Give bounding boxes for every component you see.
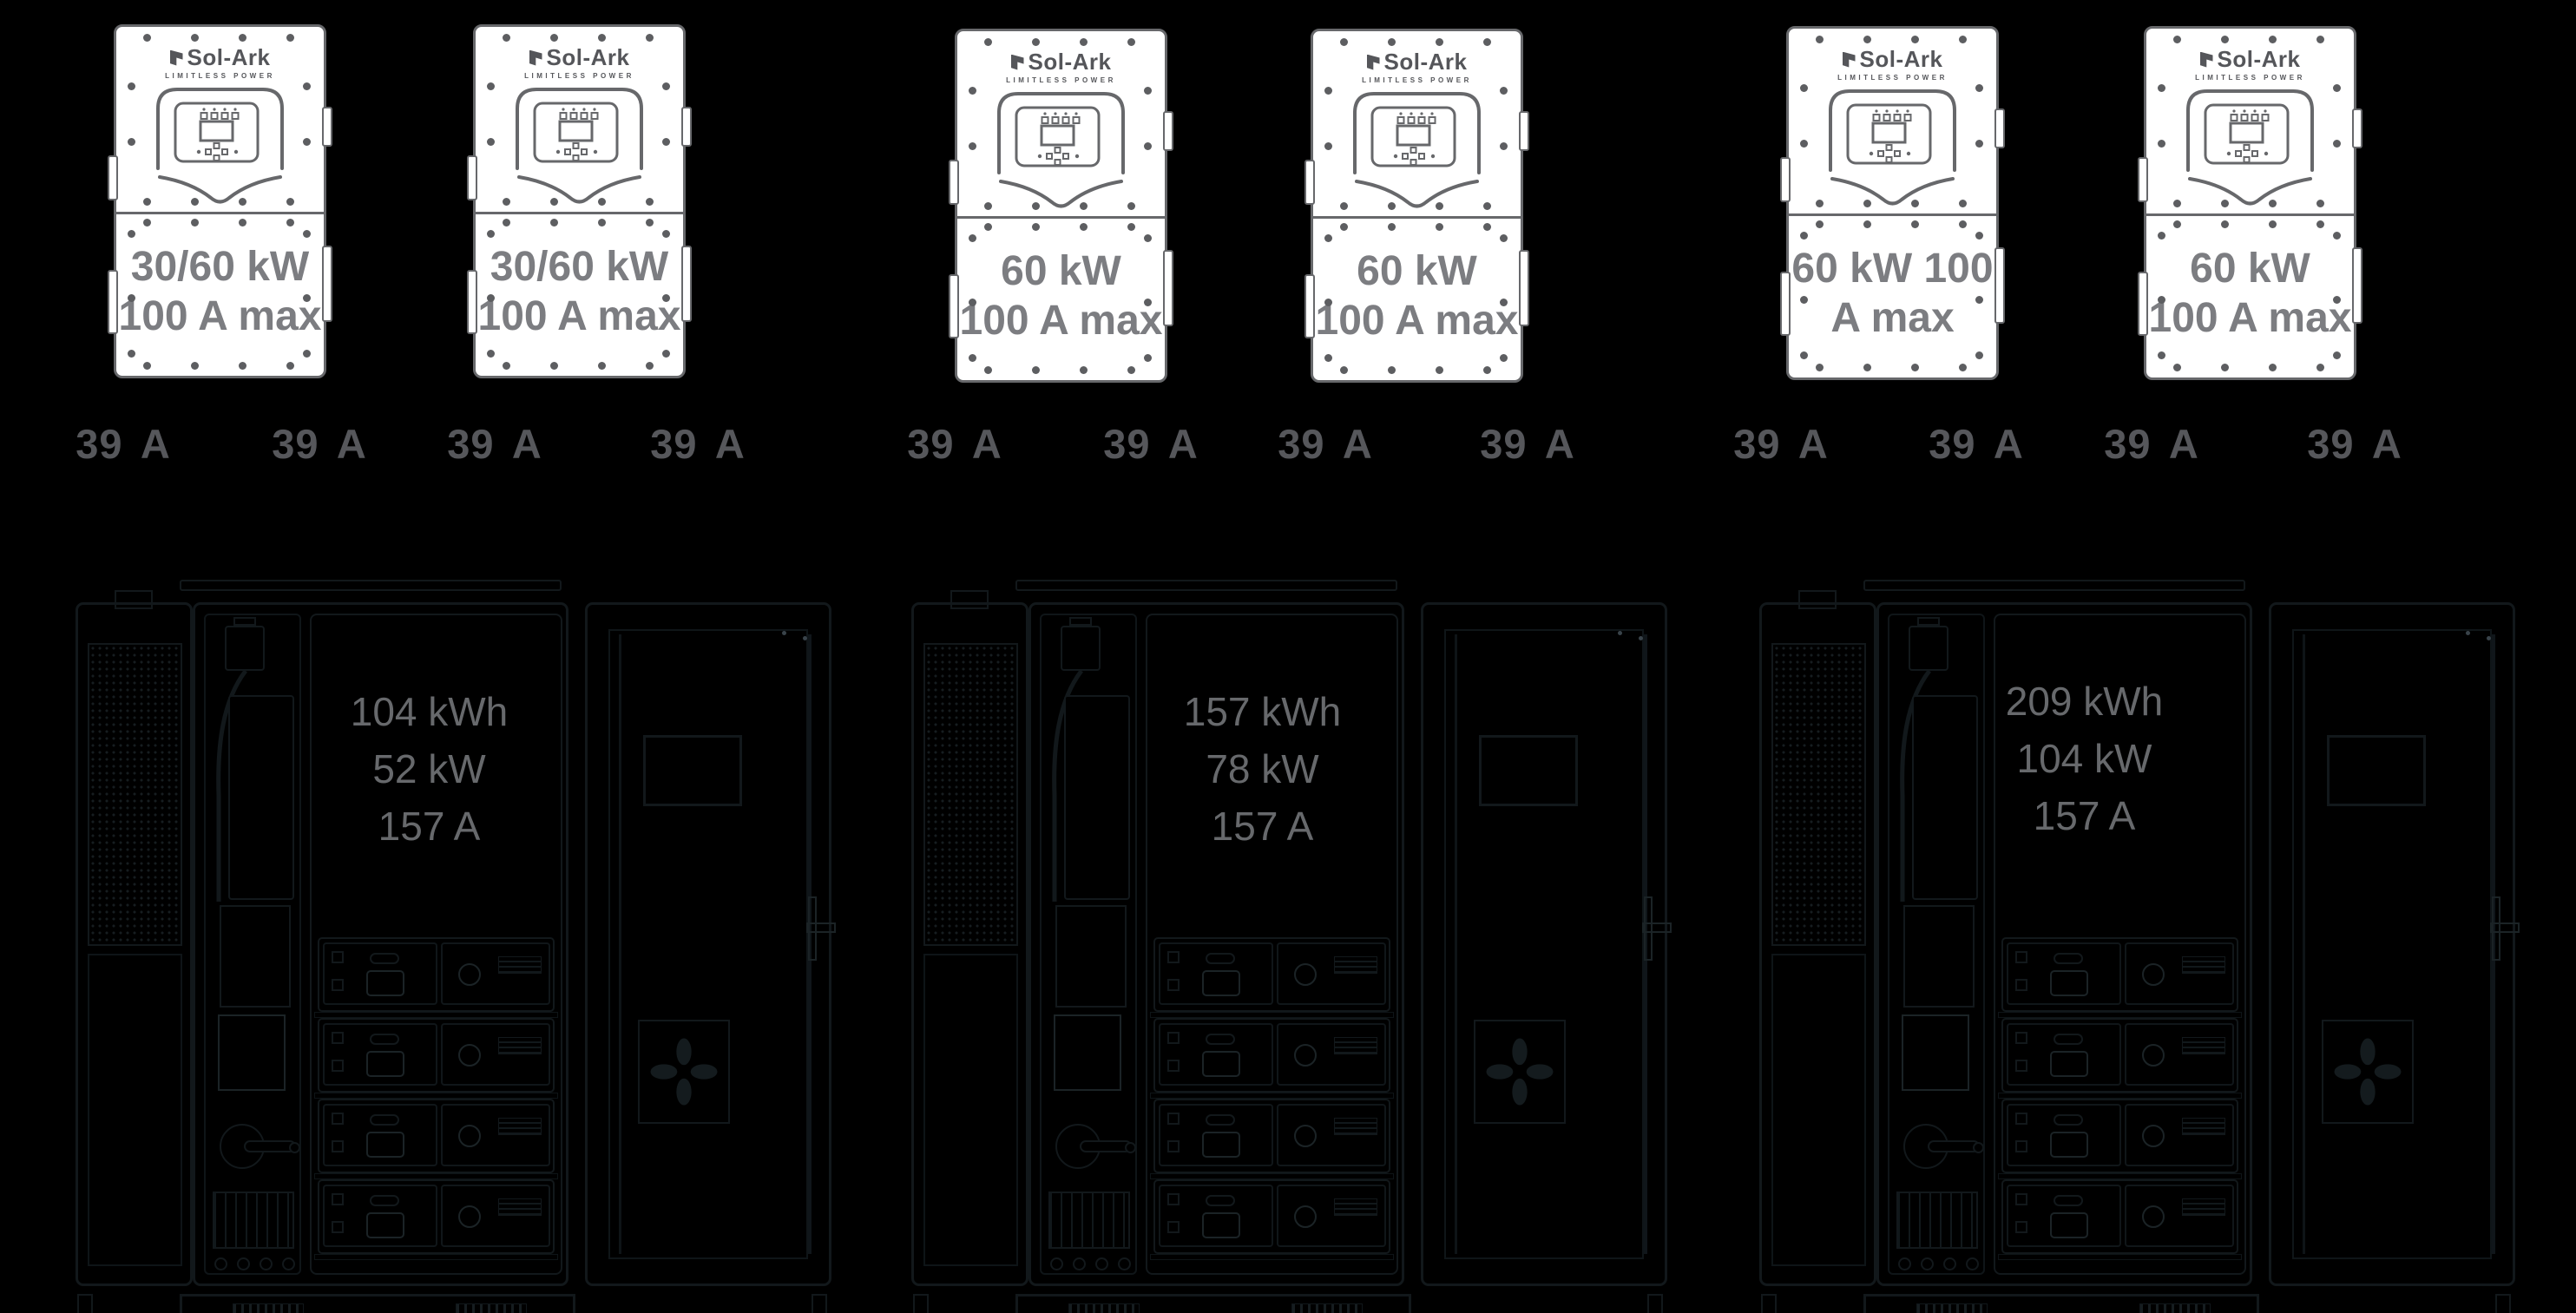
module-port	[332, 1113, 344, 1125]
screw-dot	[662, 82, 670, 90]
module-port	[332, 979, 344, 991]
screw-dot	[2316, 364, 2324, 371]
screw-dot	[646, 198, 654, 206]
module-handle	[1206, 1114, 1235, 1126]
right-latch	[322, 107, 332, 147]
battery-module	[1153, 937, 1390, 1012]
screw-dot	[1324, 234, 1332, 242]
module-connector	[366, 1212, 404, 1238]
module-label-plate	[2182, 956, 2225, 974]
screw-dot	[1127, 223, 1135, 231]
screw-dot	[984, 366, 992, 374]
inverter-display-graphic	[476, 84, 683, 214]
module-connector-panel	[2007, 1104, 2121, 1166]
solark-flag-icon	[170, 50, 183, 66]
right-latch	[1163, 111, 1173, 151]
module-face-panel	[441, 942, 550, 1005]
screw-dot	[239, 198, 246, 206]
screw-dot	[2333, 232, 2341, 240]
module-connector-panel	[1159, 942, 1273, 1005]
module-connector	[2050, 1051, 2088, 1077]
module-port	[1167, 979, 1180, 991]
screw-dot	[2269, 200, 2277, 207]
door-cabinet	[1421, 602, 1667, 1286]
solark-logo-text: Sol-Ark	[187, 44, 271, 71]
module-face-panel	[1277, 1023, 1386, 1086]
right-latch	[681, 107, 692, 147]
screw-dot	[1144, 142, 1152, 150]
terminal	[1073, 1257, 1086, 1270]
module-label-plate	[498, 1118, 542, 1135]
bank-plinth	[1863, 1294, 2259, 1313]
screw-dot	[2173, 220, 2181, 228]
inverter-rating: 60 kW 100 A max	[1313, 246, 1521, 345]
vent-cabinet	[1759, 602, 1876, 1286]
screw-dot	[1911, 364, 1919, 371]
inverter-rating-line1: 60 kW	[1313, 246, 1521, 296]
inverter-rating: 30/60 kW 100 A max	[116, 242, 324, 341]
screw-dot	[1127, 366, 1135, 374]
module-port	[332, 1221, 344, 1233]
conduit-cap	[1917, 617, 1940, 626]
inverter-rating-line1: 60 kW	[957, 246, 1165, 296]
screw-dot	[1080, 223, 1088, 231]
inverter-output-current-label-9: 39 A	[1733, 420, 1829, 468]
terminal	[1095, 1257, 1108, 1270]
fan-grille-icon	[1474, 1020, 1566, 1124]
screw-dot	[598, 362, 606, 370]
module-label-plate	[1334, 1037, 1377, 1054]
screw-dot	[1911, 220, 1919, 228]
solark-logo-text: Sol-Ark	[547, 44, 630, 71]
inverter-display-graphic	[116, 84, 324, 214]
screw-dot	[2316, 36, 2324, 43]
terminal	[1921, 1257, 1934, 1270]
screw-dot	[286, 219, 294, 226]
module-label-plate	[498, 956, 542, 974]
screw-dot	[1436, 223, 1443, 231]
screw-dot	[2158, 232, 2165, 240]
battery-module	[318, 1018, 555, 1093]
solark-flag-icon	[2200, 52, 2213, 68]
screw-dot	[1144, 299, 1152, 306]
module-handle	[370, 953, 399, 964]
screw-dot	[1800, 296, 1808, 304]
screw-dot	[1863, 364, 1871, 371]
module-face-panel	[2125, 1023, 2234, 1086]
module-handle	[1206, 1195, 1235, 1206]
screw-dot	[1975, 351, 1983, 359]
battery-bank-2: 157 kWh 78 kW 157 A	[911, 580, 1667, 1313]
screw-dot	[646, 362, 654, 370]
screw-dot	[969, 87, 976, 95]
battery-bank-1: 104 kWh 52 kW 157 A	[76, 580, 831, 1313]
right-latch	[1994, 247, 2005, 324]
module-connector	[366, 1132, 404, 1158]
screw-dot	[1816, 36, 1824, 43]
module-handle	[2054, 953, 2083, 964]
module-connector-panel	[2007, 942, 2121, 1005]
fan-grille-icon	[638, 1020, 730, 1124]
right-latch	[2352, 247, 2362, 324]
terminal	[1943, 1257, 1956, 1270]
inverter-output-current-label-10: 39 A	[1929, 420, 2024, 468]
battery-module	[2001, 937, 2238, 1012]
battery-module-bay: 104 kWh 52 kW 157 A	[310, 614, 562, 1275]
terminal	[1050, 1257, 1063, 1270]
right-latch	[322, 246, 332, 322]
bank-top-cap	[180, 580, 562, 591]
battery-specs: 209 kWh 104 kW 157 A	[2006, 673, 2164, 844]
screw-dot	[1959, 364, 1967, 371]
bank-plinth	[1015, 1294, 1411, 1313]
solark-logo-text: Sol-Ark	[1860, 46, 1943, 73]
terminal	[1118, 1257, 1131, 1270]
screw-dot	[1975, 140, 1983, 148]
screw-dot	[969, 299, 976, 306]
module-face-panel	[2125, 1185, 2234, 1247]
terminal	[237, 1257, 250, 1270]
right-latch	[1163, 250, 1173, 326]
screw-dot	[984, 202, 992, 210]
control-panel-upper	[228, 695, 294, 900]
latch-highlight	[2466, 631, 2470, 635]
control-column	[1888, 614, 1985, 1275]
left-hinge	[949, 274, 959, 338]
module-connector-panel	[323, 1185, 437, 1247]
battery-module	[1153, 1018, 1390, 1093]
module-logo-badge	[1294, 1125, 1317, 1147]
module-port	[2015, 979, 2027, 991]
battery-module	[318, 1179, 555, 1254]
screw-dot	[598, 219, 606, 226]
control-panel-lower	[1903, 905, 1975, 1008]
screw-dot	[1080, 202, 1088, 210]
inverter-rating-line2: 100 A max	[2146, 293, 2354, 343]
inverter-output-current-label-3: 39 A	[447, 420, 542, 468]
bank-top-cap	[1015, 580, 1397, 591]
battery-capacity: 209 kWh	[2006, 673, 2164, 730]
control-column	[204, 614, 301, 1275]
screw-dot	[1144, 234, 1152, 242]
module-connector-panel	[323, 1023, 437, 1086]
solark-logo-text: Sol-Ark	[1384, 49, 1468, 75]
battery-cabinet-open: 209 kWh 104 kW 157 A	[1876, 602, 2252, 1286]
module-face-panel	[1277, 1104, 1386, 1166]
inverter-rating-line1: 30/60 kW	[476, 242, 683, 292]
screw-dot	[2269, 36, 2277, 43]
module-handle	[1206, 1034, 1235, 1045]
battery-current: 157 A	[351, 798, 509, 855]
screw-dot	[239, 219, 246, 226]
screw-dot	[1863, 200, 1871, 207]
screw-dot	[239, 362, 246, 370]
screw-dot	[503, 198, 510, 206]
module-face-panel	[2125, 942, 2234, 1005]
screw-dot	[503, 219, 510, 226]
module-logo-badge	[1294, 1205, 1317, 1228]
module-connector-panel	[1159, 1185, 1273, 1247]
module-connector	[2050, 1132, 2088, 1158]
module-handle	[370, 1195, 399, 1206]
screw-dot	[1911, 200, 1919, 207]
terminal	[1966, 1257, 1979, 1270]
screw-dot	[1500, 234, 1508, 242]
door-hinge-line	[1455, 634, 1457, 1254]
door-panel	[2292, 629, 2492, 1259]
door-louver-vent	[643, 735, 742, 806]
module-logo-badge	[2142, 1125, 2165, 1147]
module-shelf	[1998, 1012, 2242, 1018]
door-hinge-line	[619, 634, 621, 1254]
solark-logo-tagline: LIMITLESS POWER	[476, 72, 683, 80]
module-shelf	[314, 1254, 558, 1260]
conduit-junction-box	[1909, 626, 1948, 671]
module-logo-badge	[2142, 1205, 2165, 1228]
module-label-plate	[2182, 1037, 2225, 1054]
screw-dot	[1816, 200, 1824, 207]
inverter-panel-seam	[116, 212, 324, 214]
latch-highlight	[1618, 631, 1622, 635]
right-latch	[1519, 111, 1529, 151]
inverter-6: Sol-Ark LIMITLESS POWER	[2144, 26, 2356, 380]
battery-module	[2001, 1099, 2238, 1173]
inverter-output-current-label-8: 39 A	[1480, 420, 1575, 468]
vent-cabinet-bracket	[1798, 590, 1837, 609]
module-connector-panel	[323, 1104, 437, 1166]
inverter-display-graphic	[1313, 89, 1521, 219]
module-handle	[2054, 1114, 2083, 1126]
breaker-box	[1054, 1014, 1121, 1091]
inverter-4: Sol-Ark LIMITLESS POWER	[1311, 29, 1523, 383]
module-logo-badge	[458, 1044, 481, 1067]
terminal	[214, 1257, 227, 1270]
latch-highlight	[2487, 636, 2491, 640]
battery-module	[1153, 1099, 1390, 1173]
breaker-row	[1048, 1192, 1130, 1249]
screw-dot	[286, 362, 294, 370]
screw-dot	[303, 82, 311, 90]
module-label-plate	[1334, 1198, 1377, 1216]
screw-dot	[239, 34, 246, 42]
module-connector-panel	[2007, 1023, 2121, 1086]
screw-dot	[1032, 366, 1040, 374]
door-handle	[806, 922, 836, 933]
inverter-rating: 60 kW 100 A max	[957, 246, 1165, 345]
module-logo-badge	[2142, 963, 2165, 986]
module-shelf	[1150, 1093, 1394, 1099]
door-handle	[2490, 922, 2520, 933]
screw-dot	[1959, 220, 1967, 228]
solark-flag-icon	[1011, 55, 1024, 70]
inverter-output-current-label-6: 39 A	[1103, 420, 1199, 468]
left-hinge	[467, 155, 477, 200]
screw-dot	[2158, 296, 2165, 304]
screw-dot	[143, 362, 151, 370]
inverter-panel-seam	[957, 216, 1165, 219]
screw-dot	[487, 350, 495, 358]
screw-dot	[487, 294, 495, 302]
screw-dot	[1388, 202, 1396, 210]
screw-dot	[191, 219, 199, 226]
inverter-2: Sol-Ark LIMITLESS POWER	[473, 24, 686, 378]
screw-dot	[128, 138, 135, 146]
screw-dot	[1144, 354, 1152, 362]
inverter-output-current-label-12: 39 A	[2307, 420, 2402, 468]
left-hinge	[2138, 157, 2148, 202]
door-cabinet	[2269, 602, 2515, 1286]
disconnect-lever	[1080, 1140, 1132, 1152]
solark-logo: Sol-Ark LIMITLESS POWER	[1789, 46, 1996, 82]
screw-dot	[2269, 220, 2277, 228]
screw-dot	[969, 354, 976, 362]
screw-dot	[1816, 364, 1824, 371]
right-latch	[681, 246, 692, 322]
solark-flag-icon	[1367, 55, 1380, 70]
left-hinge	[1304, 160, 1315, 205]
inverter-panel-seam	[476, 212, 683, 214]
screw-dot	[487, 82, 495, 90]
screw-dot	[1324, 299, 1332, 306]
module-port	[2015, 1140, 2027, 1152]
module-shelf	[314, 1173, 558, 1179]
screw-dot	[1324, 87, 1332, 95]
battery-specs: 104 kWh 52 kW 157 A	[351, 683, 509, 855]
screw-dot	[550, 219, 558, 226]
screw-dot	[1975, 232, 1983, 240]
module-label-plate	[498, 1037, 542, 1054]
module-connector-panel	[2007, 1185, 2121, 1247]
screw-dot	[2173, 200, 2181, 207]
screw-dot	[969, 234, 976, 242]
vent-cabinet-bracket	[950, 590, 989, 609]
cabinet-foot	[913, 1294, 929, 1313]
plinth-vent	[1916, 1303, 1988, 1313]
screw-dot	[191, 34, 199, 42]
solark-logo-tagline: LIMITLESS POWER	[2146, 74, 2354, 82]
conduit-junction-box	[225, 626, 265, 671]
module-connector	[1202, 1051, 1240, 1077]
module-shelf	[1998, 1254, 2242, 1260]
plinth-vent	[233, 1303, 304, 1313]
screw-dot	[1863, 220, 1871, 228]
inverter-rating-line2: 100 A max	[116, 292, 324, 341]
inverter-output-current-label-1: 39 A	[76, 420, 171, 468]
screw-dot	[128, 230, 135, 238]
screw-dot	[128, 350, 135, 358]
right-latch	[1994, 108, 2005, 148]
module-logo-badge	[1294, 963, 1317, 986]
vent-perforated-panel	[1771, 643, 1866, 946]
plinth-vent	[1291, 1303, 1363, 1313]
module-port	[1167, 1193, 1180, 1205]
module-shelf	[1998, 1093, 2242, 1099]
inverter-rating: 60 kW 100 A max	[2146, 244, 2354, 343]
plinth-vent	[2139, 1303, 2211, 1313]
screw-dot	[646, 34, 654, 42]
door-louver-vent	[1479, 735, 1578, 806]
module-port	[1167, 1221, 1180, 1233]
bank-top-cap	[1863, 580, 2245, 591]
screw-dot	[1483, 38, 1491, 46]
module-shelf	[1998, 1173, 2242, 1179]
inverter-display-graphic	[1789, 86, 1996, 216]
solark-flag-icon	[1843, 52, 1856, 68]
module-connector	[366, 1051, 404, 1077]
screw-dot	[1388, 38, 1396, 46]
latch-highlight	[782, 631, 786, 635]
control-panel-upper	[1912, 695, 1978, 900]
module-face-panel	[1277, 1185, 1386, 1247]
inverter-rating-line2: A max	[1789, 293, 1996, 343]
module-handle	[1206, 953, 1235, 964]
vent-lower-panel	[88, 954, 182, 1266]
module-connector	[366, 970, 404, 996]
inverter-output-current-label-5: 39 A	[907, 420, 1002, 468]
screw-dot	[2269, 364, 2277, 371]
module-handle	[370, 1114, 399, 1126]
inverter-3: Sol-Ark LIMITLESS POWER	[955, 29, 1167, 383]
module-port	[1167, 1032, 1180, 1044]
plinth-vent	[456, 1303, 527, 1313]
screw-dot	[1483, 202, 1491, 210]
solark-logo-tagline: LIMITLESS POWER	[1313, 76, 1521, 84]
breaker-box	[1902, 1014, 1969, 1091]
screw-dot	[1127, 38, 1135, 46]
screw-dot	[1127, 202, 1135, 210]
inverter-rating-line2: 100 A max	[957, 296, 1165, 345]
module-logo-badge	[2142, 1044, 2165, 1067]
disconnect-lever	[244, 1140, 296, 1152]
battery-bank-3: 209 kWh 104 kW 157 A	[1759, 580, 2515, 1313]
breaker-row	[1896, 1192, 1978, 1249]
screw-dot	[2158, 351, 2165, 359]
screw-dot	[2158, 140, 2165, 148]
control-panel-lower	[1055, 905, 1127, 1008]
solark-flag-icon	[529, 50, 542, 66]
left-hinge	[1780, 157, 1791, 202]
screw-dot	[1340, 223, 1348, 231]
inverter-display-graphic	[2146, 86, 2354, 216]
battery-cabinet-open: 104 kWh 52 kW 157 A	[193, 602, 568, 1286]
screw-dot	[1483, 366, 1491, 374]
screw-dot	[550, 198, 558, 206]
screw-dot	[1324, 142, 1332, 150]
screw-dot	[303, 350, 311, 358]
module-label-plate	[498, 1198, 542, 1216]
screw-dot	[143, 219, 151, 226]
fan-grille-icon	[2322, 1020, 2414, 1124]
module-port	[1167, 1140, 1180, 1152]
control-panel-lower	[220, 905, 291, 1008]
left-hinge	[108, 270, 118, 334]
screw-dot	[2333, 351, 2341, 359]
battery-module	[1153, 1179, 1390, 1254]
battery-cabinet-open: 157 kWh 78 kW 157 A	[1028, 602, 1404, 1286]
left-hinge	[1780, 272, 1791, 336]
latch-highlight	[803, 636, 807, 640]
module-label-plate	[2182, 1118, 2225, 1135]
left-hinge	[1304, 274, 1315, 338]
left-hinge	[467, 270, 477, 334]
vent-perforated-panel	[88, 643, 182, 946]
battery-capacity: 104 kWh	[351, 683, 509, 740]
inverter-5: Sol-Ark LIMITLESS POWER	[1786, 26, 1999, 380]
module-connector	[2050, 970, 2088, 996]
screw-dot	[1324, 354, 1332, 362]
conduit-cap	[233, 617, 256, 626]
vent-cabinet	[76, 602, 193, 1286]
